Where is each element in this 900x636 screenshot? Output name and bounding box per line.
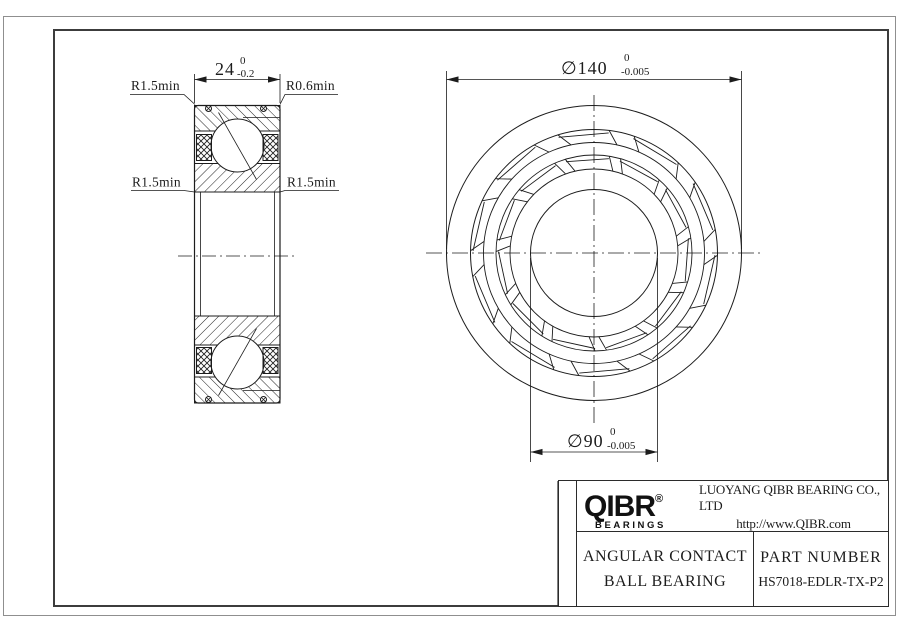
bore-chamfer-lines — [201, 192, 275, 316]
cage-section-top-right — [263, 135, 278, 161]
radius-label-top-right: R0.6min — [286, 78, 335, 93]
section-view — [130, 74, 339, 403]
od-dim-value: ∅140 — [561, 58, 608, 78]
product-type-line1: ANGULAR CONTACT — [583, 548, 747, 566]
company-info: LUOYANG QIBR BEARING CO., LTD http://www… — [699, 481, 888, 531]
title-block-margin-column — [559, 481, 577, 606]
radius-label-top-left: R1.5min — [131, 78, 180, 93]
product-type-cell: ANGULAR CONTACT BALL BEARING — [577, 532, 754, 606]
width-dim-tol-lower: -0.2 — [237, 68, 254, 80]
cage-section-top-left — [197, 135, 212, 161]
od-dim-tol-lower: -0.005 — [621, 66, 650, 78]
front-view — [426, 71, 762, 462]
company-website: http://www.QIBR.com — [736, 516, 851, 532]
title-block-detail-row: ANGULAR CONTACT BALL BEARING PART NUMBER… — [577, 532, 888, 606]
logo-wordmark: QIBR® — [584, 484, 699, 522]
logo-subtext: BEARINGS — [595, 520, 699, 531]
width-dim-value: 24 — [215, 59, 235, 79]
title-block-header-row: QIBR® BEARINGS LUOYANG QIBR BEARING CO.,… — [577, 481, 888, 532]
radius-label-mid-left: R1.5min — [132, 175, 181, 190]
bore-dim-tol-upper: 0 — [610, 426, 616, 438]
part-number-label: PART NUMBER — [760, 549, 882, 567]
part-number-cell: PART NUMBER HS7018-EDLR-TX-P2 — [754, 532, 888, 606]
radius-label-mid-right: R1.5min — [287, 175, 336, 190]
part-number-value: HS7018-EDLR-TX-P2 — [758, 574, 883, 590]
cage-pockets-inner-band — [496, 156, 691, 351]
registered-trademark-icon: ® — [655, 493, 663, 505]
cage-section-bottom-right — [263, 348, 278, 374]
title-block-main: QIBR® BEARINGS LUOYANG QIBR BEARING CO.,… — [577, 481, 888, 606]
company-name: LUOYANG QIBR BEARING CO., LTD — [699, 482, 888, 514]
company-logo: QIBR® BEARINGS — [577, 481, 699, 531]
bore-dim-value: ∅90 — [567, 431, 604, 451]
title-block: QIBR® BEARINGS LUOYANG QIBR BEARING CO.,… — [558, 480, 889, 607]
engineering-drawing-page: { "drawing": { "section_view": { "width_… — [0, 0, 900, 636]
cage-section-bottom-left — [197, 348, 212, 374]
width-dim-tol-upper: 0 — [240, 55, 246, 67]
product-type-line2: BALL BEARING — [604, 573, 726, 591]
od-dim-tol-upper: 0 — [624, 52, 630, 64]
bore-dim-tol-lower: -0.005 — [607, 440, 636, 452]
logo-text: QIBR — [584, 490, 655, 523]
